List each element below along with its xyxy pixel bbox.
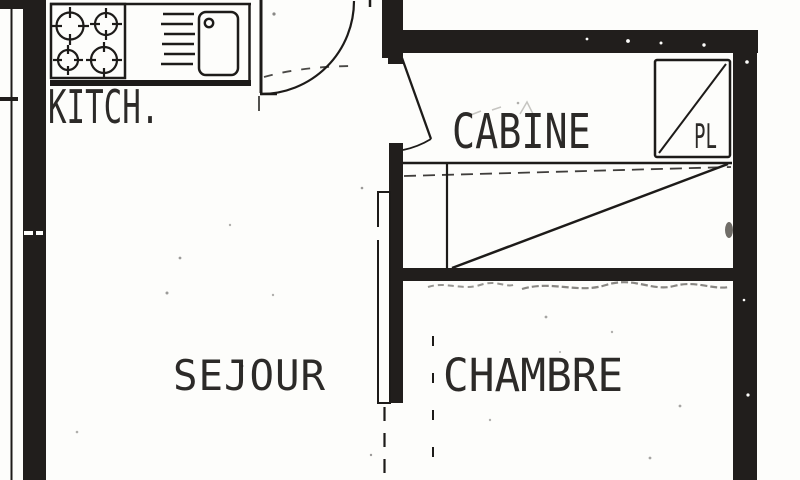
room-label-closet: PL bbox=[694, 120, 717, 154]
room-label-kitchen: KITCH. bbox=[48, 84, 159, 130]
cabin-door-leaf bbox=[402, 58, 431, 139]
kitchen-sink-icon bbox=[161, 12, 238, 75]
top-exterior-wall bbox=[382, 0, 758, 64]
room-label-living: SEJOUR bbox=[173, 355, 326, 397]
left-exterior-wall bbox=[0, 0, 46, 480]
cabin-door-swing bbox=[403, 139, 431, 150]
floor-plan-scan: KITCH. CABINE SEJOUR CHAMBRE PL bbox=[0, 0, 800, 480]
closet-box bbox=[655, 60, 730, 157]
scan-smudge bbox=[522, 282, 729, 289]
scan-smudge bbox=[428, 283, 516, 287]
room-label-bedroom: CHAMBRE bbox=[443, 353, 623, 398]
room-label-cabin: CABINE bbox=[452, 108, 591, 156]
cabin-bed-diagonal bbox=[452, 164, 728, 268]
sliding-panel bbox=[378, 192, 390, 403]
stove-burners-icon bbox=[51, 7, 122, 78]
cabin-interior-lines bbox=[403, 163, 732, 269]
cabin-bottom-wall bbox=[402, 268, 733, 289]
entrance-door-swing bbox=[259, 0, 370, 111]
cabin-dashed-line bbox=[404, 167, 731, 176]
floorplan-drawing bbox=[0, 0, 800, 480]
